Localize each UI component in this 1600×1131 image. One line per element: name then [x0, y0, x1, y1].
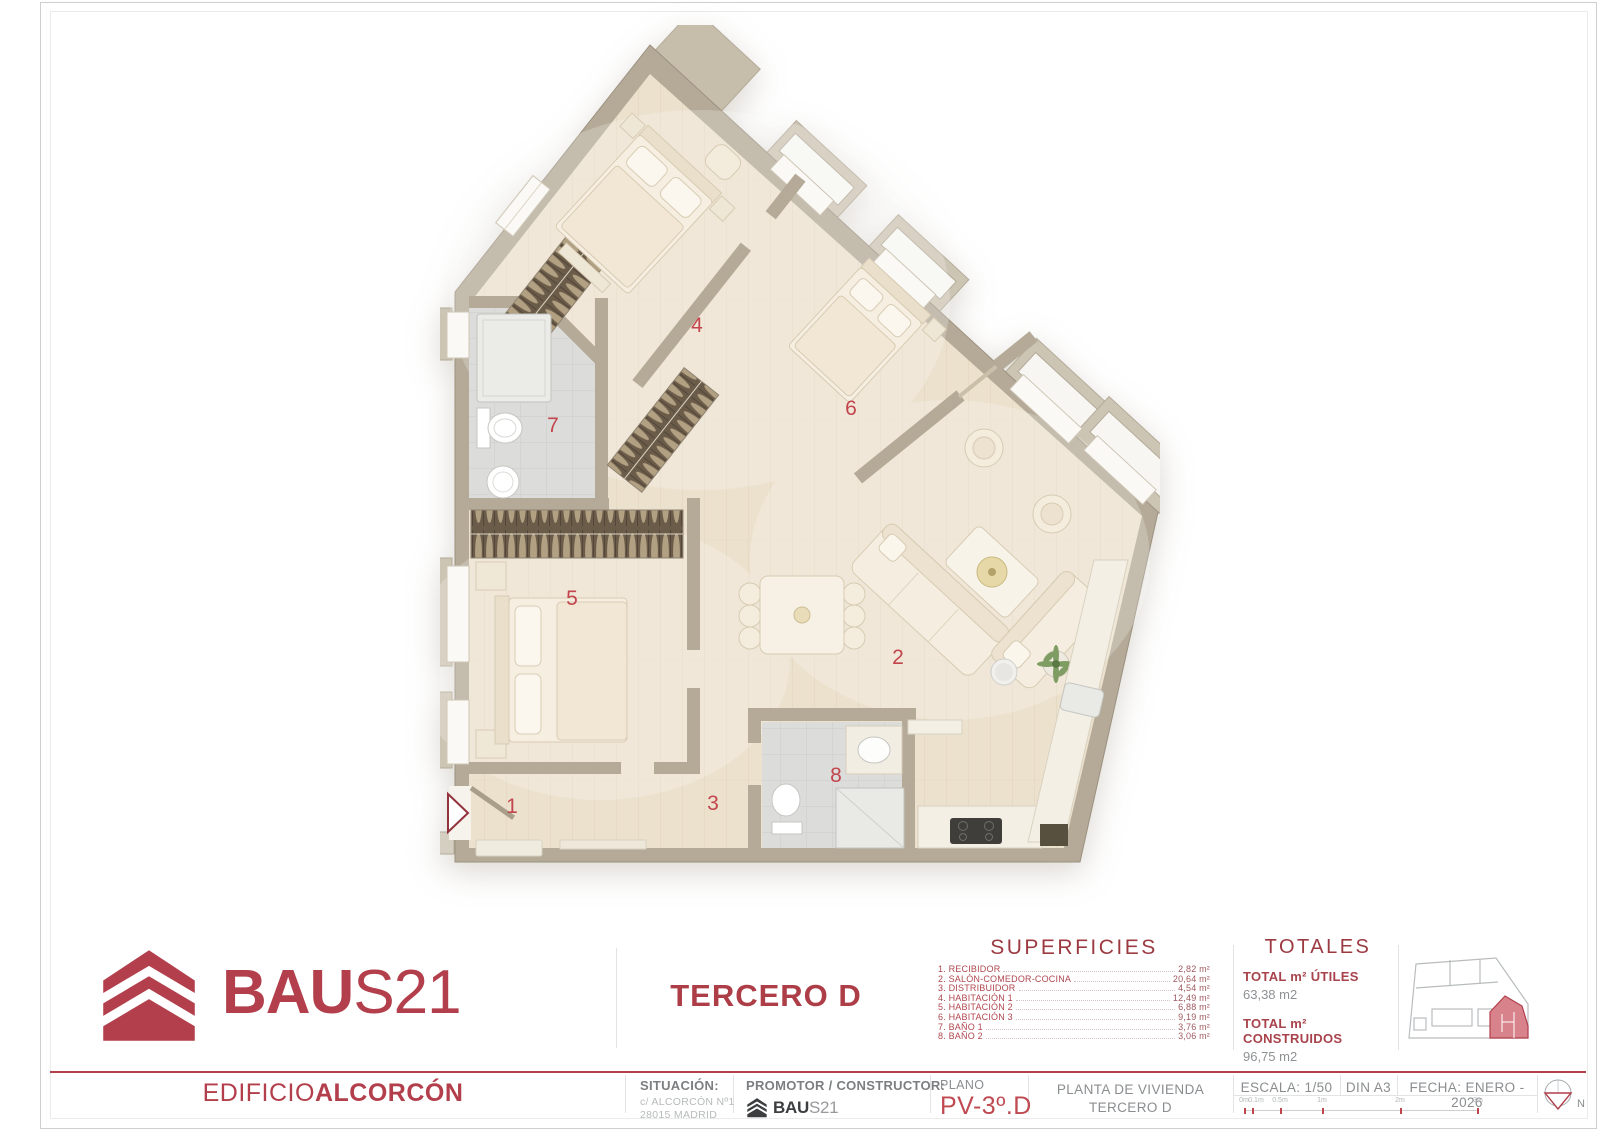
brand-logo-bold: BAU — [222, 958, 353, 1027]
promotor-label: PROMOTOR / CONSTRUCTOR: — [746, 1078, 945, 1093]
escala-value: ESCALA: 1/50 — [1233, 1080, 1340, 1095]
brand-house-icon-small — [746, 1097, 768, 1118]
room-number-8: 8 — [830, 764, 842, 787]
room-number-6: 6 — [845, 397, 857, 420]
totales-title: TOTALES — [1243, 936, 1393, 959]
totales-construidos-value: 96,75 m2 — [1243, 1049, 1393, 1064]
dining-set — [739, 576, 865, 654]
room-number-2: 2 — [892, 646, 904, 669]
titleblock-situacion: SITUACIÓN: c/ ALCORCÓN Nº1 28015 MADRID — [640, 1078, 735, 1122]
key-plan — [1402, 952, 1552, 1044]
divider — [1398, 945, 1399, 1050]
divider — [1233, 945, 1234, 1050]
building-name-bold: ALCORCÓN — [315, 1079, 463, 1107]
scale-tick-label: 3m — [1473, 1097, 1483, 1104]
scale-tick-label: 0.5m — [1272, 1097, 1288, 1104]
room-number-7: 7 — [547, 414, 559, 437]
brand-logo-light: S21 — [353, 958, 460, 1027]
totales-utiles-label: TOTAL m² ÚTILES — [1243, 969, 1393, 984]
hall-console — [560, 840, 646, 849]
north-label: N — [1577, 1098, 1585, 1110]
key-plan-highlighted-unit — [1490, 996, 1528, 1038]
scale-tick-label: 2m — [1395, 1097, 1405, 1104]
room-number-4: 4 — [691, 314, 703, 337]
superficies-table: SUPERFICIES 1. RECIBIDOR2,82 m² 2. SALÓN… — [938, 936, 1210, 1042]
brand-house-icon — [97, 945, 201, 1044]
scale-tick-label: 0.1m — [1248, 1097, 1264, 1104]
divider — [625, 1075, 626, 1113]
room-number-3: 3 — [707, 792, 719, 815]
situacion-label: SITUACIÓN: — [640, 1078, 735, 1093]
promotor-brand-light: S21 — [809, 1098, 838, 1117]
door-mat — [476, 840, 542, 856]
plano-label: PLANO — [940, 1078, 1032, 1092]
plan-sheet: 1 2 3 4 5 6 7 8 3º D BAUS21 TERCERO D — [0, 0, 1600, 1131]
room-number-5: 5 — [566, 587, 578, 610]
divider — [1537, 1075, 1538, 1113]
titleblock-promotor: PROMOTOR / CONSTRUCTOR: BAUS21 — [746, 1078, 945, 1118]
totales-construidos-label: TOTAL m² CONSTRUIDOS — [1243, 1016, 1393, 1046]
scale-bar: 0m 0.1m 0.5m 1m 2m 3m — [1244, 1108, 1478, 1116]
promotor-brand-logo: BAUS21 — [746, 1097, 945, 1118]
plano-value: PV-3º.D — [940, 1092, 1032, 1121]
north-compass-icon — [1540, 1078, 1576, 1114]
totales-panel: TOTALES TOTAL m² ÚTILES 63,38 m2 TOTAL m… — [1243, 936, 1393, 1078]
totales-utiles-value: 63,38 m2 — [1243, 987, 1393, 1002]
fecha-value: FECHA: ENERO - 2026 — [1397, 1080, 1537, 1110]
situacion-address2: 28015 MADRID — [640, 1109, 735, 1122]
situacion-address1: c/ ALCORCÓN Nº1 — [640, 1096, 735, 1109]
titleblock-planta: PLANTA DE VIVIENDA TERCERO D — [1028, 1082, 1233, 1115]
scale-tick-label: 1m — [1317, 1097, 1327, 1104]
promotor-brand-bold: BAU — [773, 1098, 809, 1117]
superficies-row: 8. BAÑO 23,06 m² — [938, 1032, 1210, 1042]
building-name-light: EDIFICIO — [203, 1079, 315, 1107]
planta-line2: TERCERO D — [1028, 1100, 1233, 1115]
footer-red-line — [50, 1071, 1586, 1073]
building-name: EDIFICIOALCORCÓN — [50, 1079, 616, 1108]
planta-line1: PLANTA DE VIVIENDA — [1028, 1082, 1233, 1097]
brand-logo: BAUS21 — [222, 962, 461, 1024]
formato-value: DIN A3 — [1340, 1080, 1397, 1095]
unit-title: TERCERO D — [616, 978, 916, 1014]
superficies-title: SUPERFICIES — [938, 936, 1210, 960]
floor-plan: 1 2 3 4 5 6 7 8 3º D — [440, 25, 1160, 870]
titleblock-plano: PLANO PV-3º.D — [940, 1078, 1032, 1121]
room-number-1: 1 — [506, 795, 518, 818]
